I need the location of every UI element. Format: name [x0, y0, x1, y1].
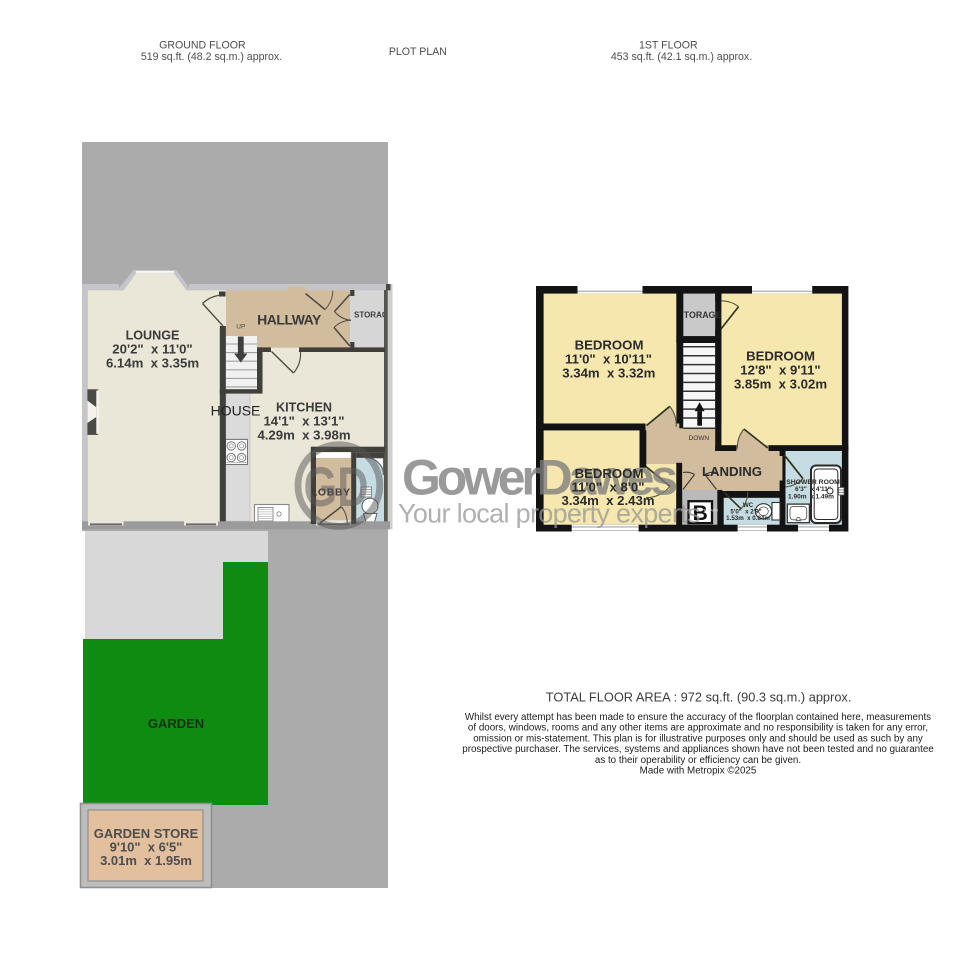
svg-text:6.14m x 3.35m: 6.14m x 3.35m	[106, 356, 199, 371]
svg-text:of doors, windows, rooms and a: of doors, windows, rooms and any other i…	[468, 723, 928, 734]
svg-text:BEDROOM: BEDROOM	[575, 338, 644, 353]
svg-text:PLOT PLAN: PLOT PLAN	[389, 46, 447, 58]
svg-text:STORAG: STORAG	[354, 311, 388, 320]
svg-text:3.85m x 3.02m: 3.85m x 3.02m	[734, 377, 827, 392]
svg-text:GARDEN: GARDEN	[148, 716, 204, 731]
svg-text:HOUSE: HOUSE	[211, 403, 261, 419]
svg-text:1.53m x 0.84m: 1.53m x 0.84m	[726, 515, 770, 522]
svg-text:DOWN: DOWN	[689, 435, 710, 442]
svg-text:14'1" x 13'1": 14'1" x 13'1"	[263, 414, 344, 429]
svg-text:LANDING: LANDING	[702, 464, 762, 479]
svg-text:Made with Metropix ©2025: Made with Metropix ©2025	[640, 766, 757, 777]
svg-text:UP: UP	[236, 324, 245, 331]
svg-text:20'2" x 11'0": 20'2" x 11'0"	[112, 342, 192, 357]
svg-text:453 sq.ft. (42.1 sq.m.) approx: 453 sq.ft. (42.1 sq.m.) approx.	[611, 51, 752, 63]
svg-text:3.34m x 2.43m: 3.34m x 2.43m	[561, 493, 654, 508]
svg-text:KITCHEN: KITCHEN	[276, 401, 332, 415]
svg-text:omission or mis-statement. Thi: omission or mis-statement. This plan is …	[473, 733, 923, 744]
svg-text:1.90m x 1.49m: 1.90m x 1.49m	[788, 494, 834, 501]
svg-text:4.29m x 3.98m: 4.29m x 3.98m	[257, 428, 350, 443]
svg-text:HALLWAY: HALLWAY	[257, 312, 322, 328]
svg-text:TOTAL FLOOR AREA : 972 sq.ft.: TOTAL FLOOR AREA : 972 sq.ft. (90.3 sq.m…	[546, 690, 852, 705]
svg-text:BEDROOM: BEDROOM	[746, 349, 815, 364]
svg-text:GROUND FLOOR: GROUND FLOOR	[159, 39, 246, 51]
svg-text:3.01m x 1.95m: 3.01m x 1.95m	[100, 853, 192, 868]
svg-text:GD: GD	[304, 455, 369, 518]
svg-text:11'0" x 10'11": 11'0" x 10'11"	[565, 352, 652, 367]
svg-text:SHOWER ROOM: SHOWER ROOM	[786, 479, 840, 486]
svg-text:Your local property experts: Your local property experts	[398, 499, 700, 529]
svg-text:1ST FLOOR: 1ST FLOOR	[639, 39, 698, 51]
svg-text:as to their operability or eff: as to their operability or efficiency ca…	[595, 755, 801, 766]
svg-text:prospective purchaser. The ser: prospective purchaser. The services, sys…	[462, 744, 934, 755]
svg-text:6'3" x 4'11": 6'3" x 4'11"	[795, 486, 831, 493]
svg-text:Whilst every attempt has been: Whilst every attempt has been made to en…	[465, 712, 931, 723]
svg-text:LOUNGE: LOUNGE	[126, 329, 180, 343]
svg-text:12'8" x 9'11": 12'8" x 9'11"	[740, 363, 820, 378]
svg-text:TORAGE: TORAGE	[684, 310, 722, 320]
svg-text:3.34m x 3.32m: 3.34m x 3.32m	[562, 366, 655, 381]
svg-text:519 sq.ft. (48.2 sq.m.) approx: 519 sq.ft. (48.2 sq.m.) approx.	[141, 51, 282, 63]
